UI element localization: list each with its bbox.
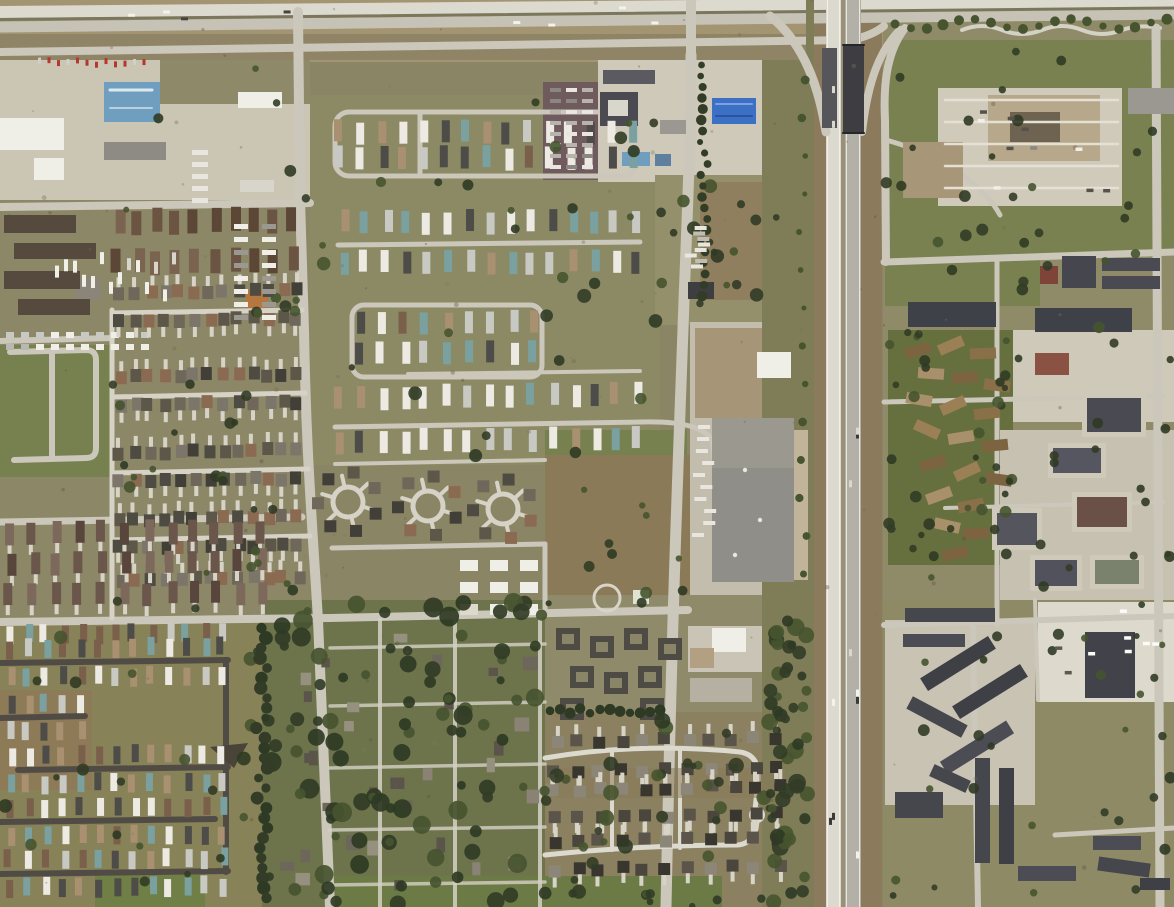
- aerial-imagery-viewport: [0, 0, 1174, 907]
- satellite-map-canvas[interactable]: [0, 0, 1174, 907]
